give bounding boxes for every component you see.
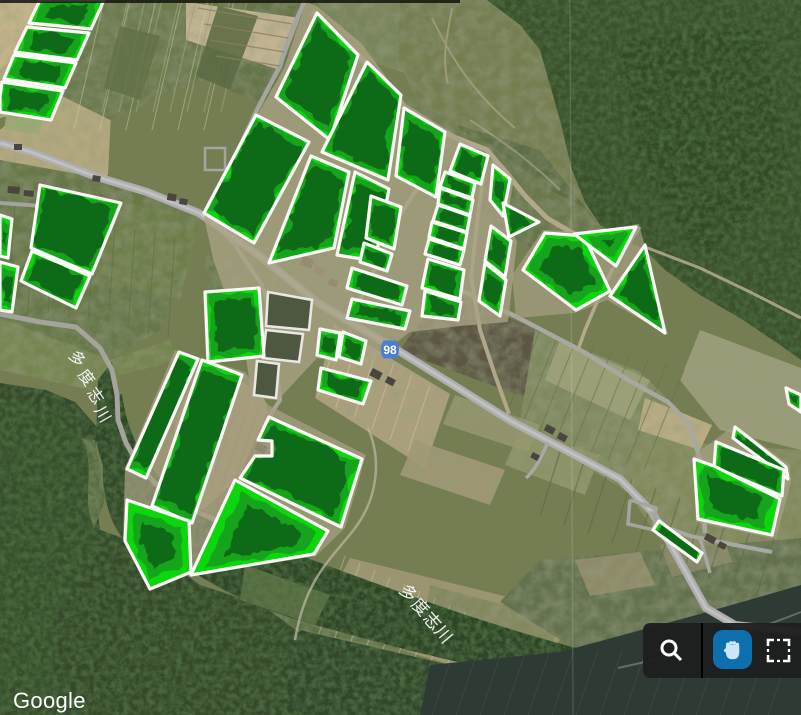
svg-text:Google: Google — [13, 688, 86, 713]
svg-text:98: 98 — [383, 343, 397, 357]
